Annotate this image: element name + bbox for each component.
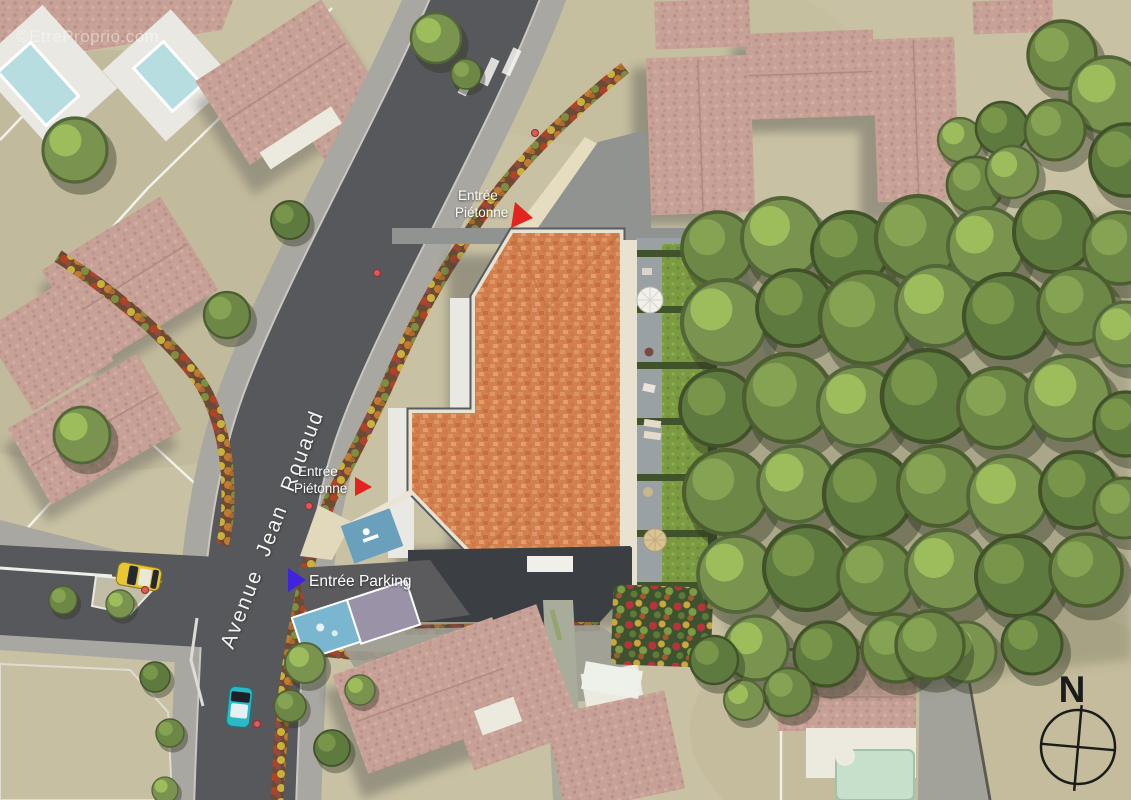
site-plan-rendering: Avenue Jean Rouaud Entrée Piétonne Entré… <box>0 0 1131 800</box>
entrance-pedestrian-side-line1: Entrée <box>298 464 338 479</box>
entrance-pedestrian-top-line2: Piétonne <box>455 205 508 220</box>
compass-north-label: N <box>1059 669 1086 710</box>
entrance-pedestrian-top-line1: Entrée <box>458 188 498 203</box>
entrance-pedestrian-side-line2: Piétonne <box>294 481 347 496</box>
site-plan-svg: Avenue Jean Rouaud Entrée Piétonne Entré… <box>0 0 1131 800</box>
parasol-white <box>637 287 663 313</box>
watermark-text: ©EtreProprio.com <box>16 27 159 46</box>
teal-car <box>226 686 253 728</box>
ne-house-top <box>654 0 751 50</box>
parasol-tan <box>644 529 667 552</box>
skylight <box>527 556 573 572</box>
entrance-parking-label: Entrée Parking <box>309 573 412 590</box>
